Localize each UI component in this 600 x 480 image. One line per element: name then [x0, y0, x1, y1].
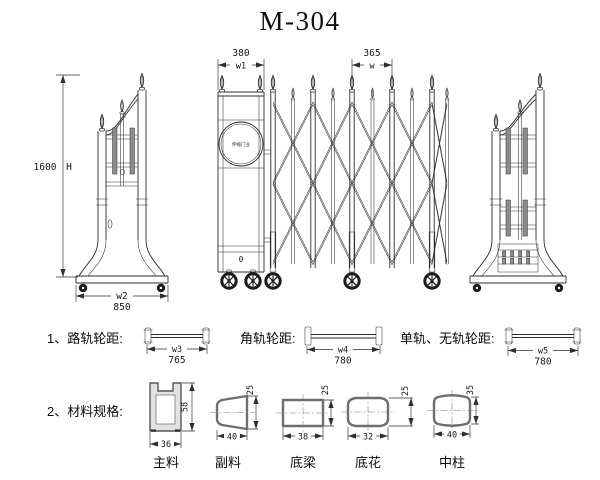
rail-dim-value: 765 [168, 355, 185, 366]
panel-spacing-dimension: 365 w [352, 48, 392, 84]
profile-flower-width: 32 [363, 433, 373, 443]
drawing-canvas: M-304 1600 H w2 850 [0, 0, 600, 480]
base-dim-value: 850 [113, 302, 130, 313]
wheel-spec-angle: 角轨轮距: w4 780 [240, 327, 382, 367]
wheel-spec-angle-title: 角轨轮距: [240, 331, 296, 346]
base-dim-label: w2 [116, 291, 127, 302]
head-dim-label: w1 [236, 62, 246, 72]
profile-main-name: 主料 [153, 455, 179, 470]
panel-dim-label: w [369, 62, 375, 72]
left-post: w2 850 [76, 74, 168, 314]
profile-bottom-flower: 32 25 底花 [341, 386, 413, 470]
profile-main-height: 58 [181, 402, 191, 412]
emblem-text: 伸缩门业 [232, 141, 250, 148]
profile-secondary-name: 副料 [215, 455, 241, 470]
profile-beam-height: 25 [321, 385, 331, 395]
base-width-dimension: w2 850 [76, 285, 168, 313]
rail-dim-label: w3 [172, 345, 182, 355]
right-post [470, 74, 566, 293]
trackless-dim-label: w5 [538, 347, 548, 357]
profile-center-post: 40 35 中柱 [427, 385, 479, 470]
gate-head-post: 伸缩门业 0 380 w1 [218, 48, 264, 288]
angle-dim-label: w4 [338, 346, 348, 356]
angle-dim-value: 780 [334, 356, 351, 367]
profile-secondary-width: 40 [227, 433, 237, 443]
panel-dim-value: 365 [363, 48, 380, 59]
wheel-spec-rail-title: 1、路轨轮距: [47, 331, 123, 346]
profile-beam-width: 38 [298, 433, 308, 443]
drawing-page: M-304 1600 H w2 850 [0, 0, 600, 480]
profile-center-width: 40 [447, 431, 457, 441]
profile-beam-name: 底梁 [290, 455, 316, 470]
trackless-dim-value: 780 [534, 357, 551, 368]
materials-title: 2、材料规格: [47, 404, 123, 419]
profile-center-height: 35 [466, 385, 476, 395]
height-dim-label: H [66, 162, 72, 173]
profile-flower-name: 底花 [355, 455, 381, 470]
head-width-dimension: 380 w1 [218, 48, 264, 90]
head-dim-value: 380 [232, 48, 249, 59]
materials-section: 2、材料规格: 58 36 主料 40 25 副料 [47, 383, 479, 470]
height-dim-value: 1600 [34, 162, 57, 173]
profile-secondary-height: 25 [246, 385, 256, 395]
profile-flower-height: 25 [401, 386, 411, 396]
wheel-spec-trackless-title: 单轨、无轨轮距: [400, 331, 495, 346]
gate-lattice: 365 w [264, 48, 449, 288]
page-title: M-304 [260, 6, 341, 36]
keyhole-mark: 0 [239, 255, 244, 264]
profile-center-name: 中柱 [439, 455, 465, 470]
profile-secondary: 40 25 副料 [210, 385, 258, 470]
profile-bottom-beam: 38 25 底梁 [276, 385, 334, 470]
profile-main: 58 36 主料 [150, 383, 195, 470]
wheel-spec-rail: 1、路轨轮距: w3 765 [47, 328, 211, 366]
profile-main-width: 36 [161, 440, 171, 450]
wheel-spec-trackless: 单轨、无轨轮距: w5 780 [400, 328, 582, 368]
height-dimension: 1600 H [34, 75, 80, 277]
